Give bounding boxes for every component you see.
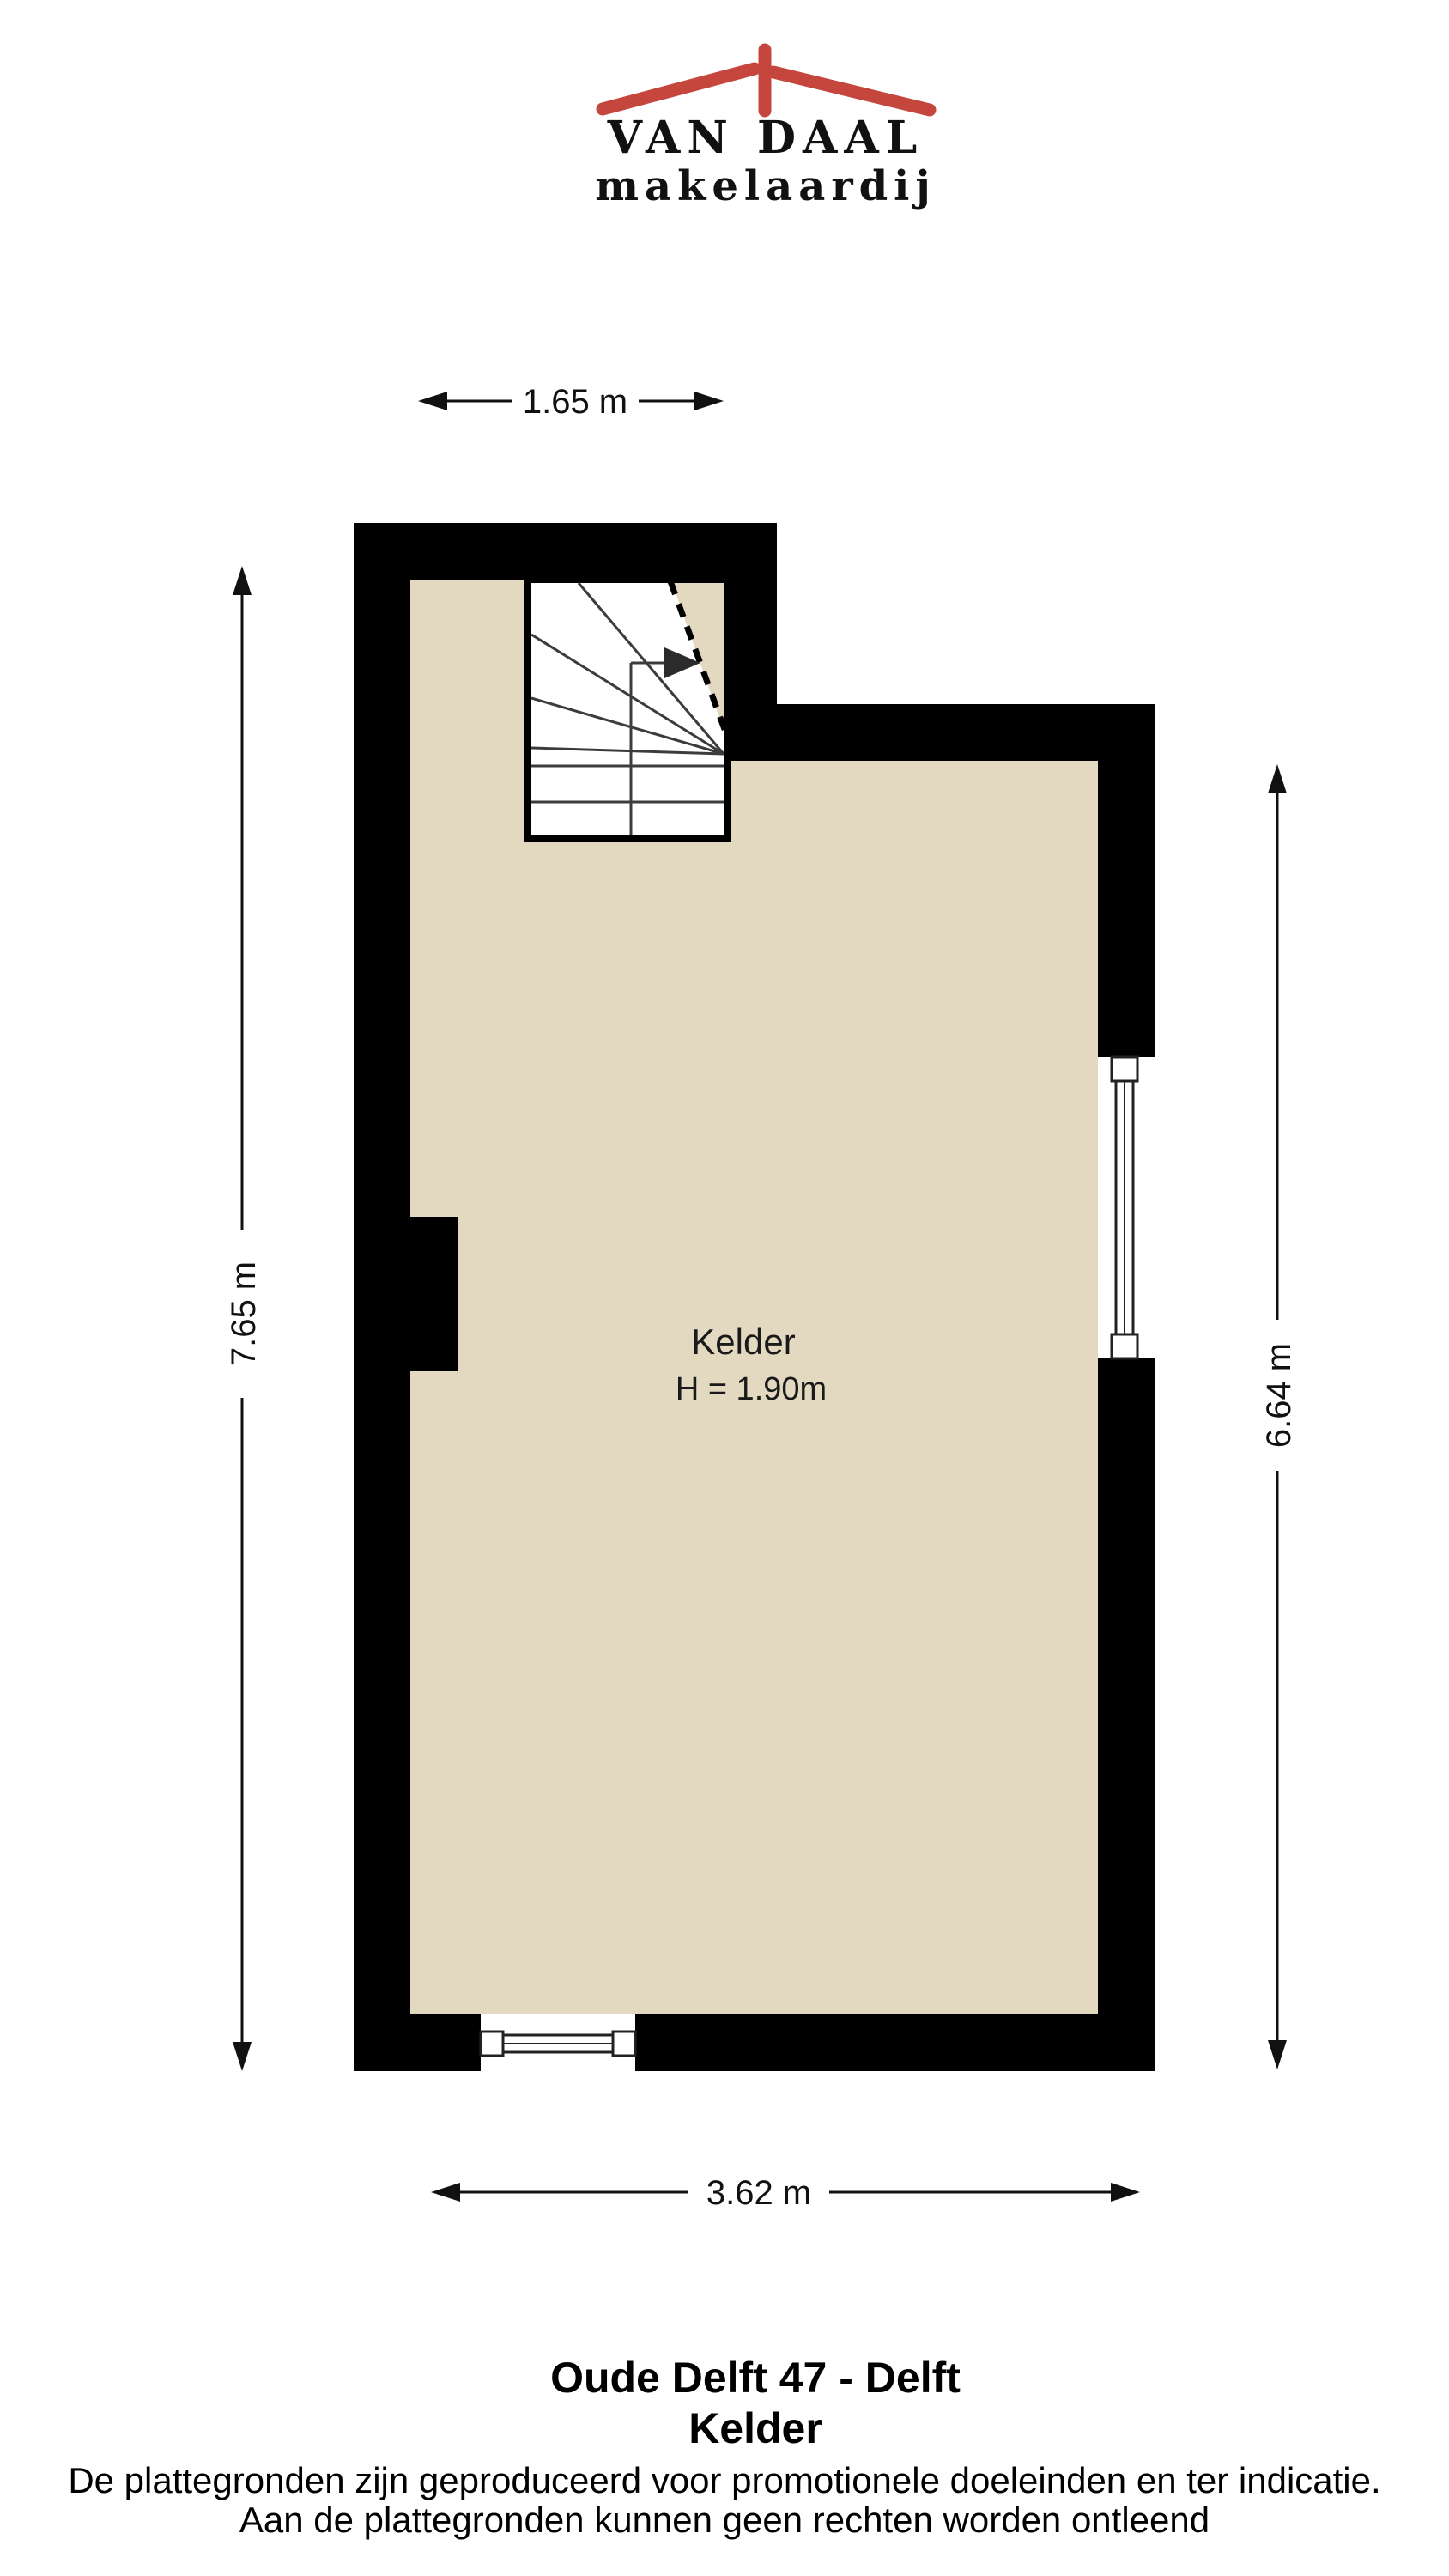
window-bottom-cap-left: [481, 2032, 503, 2056]
wall-top-lower: [725, 704, 1155, 761]
room-name-label: Kelder: [691, 1321, 795, 1362]
room-floor: [410, 580, 1098, 2014]
window-right-cap-bottom: [1112, 1334, 1137, 1358]
dimension-right: 6.64 m: [1260, 764, 1298, 2069]
wall-right-upper: [1098, 704, 1155, 1057]
arrow-down-icon: [233, 2042, 252, 2071]
disclaimer-line-1: De plattegronden zijn geproduceerd voor …: [68, 2460, 1380, 2500]
logo-tagline: makelaardij: [595, 162, 937, 210]
dimension-bottom: 3.62 m: [431, 2174, 1140, 2212]
window-bottom-cap-right: [613, 2032, 635, 2056]
dimension-top: 1.65 m: [418, 383, 724, 421]
arrow-up-icon: [233, 566, 252, 595]
arrow-right-icon: [694, 392, 724, 410]
window-right-cap-top: [1112, 1057, 1137, 1081]
roof-left-slope: [603, 69, 755, 109]
window-bottom: [481, 2014, 635, 2071]
floorplan-canvas: VAN DAAL makelaardij: [0, 0, 1449, 2576]
wall-bottom-left: [354, 2014, 481, 2071]
logo: VAN DAAL makelaardij: [595, 50, 937, 210]
room-height-label: H = 1.90m: [676, 1371, 827, 1407]
dim-left-label: 7.65 m: [225, 1261, 263, 1366]
address-title: Oude Delft 47 - Delft: [550, 2354, 961, 2402]
wall-bottom-right: [635, 2014, 1155, 2071]
dim-right-label: 6.64 m: [1260, 1343, 1298, 1448]
wall-left: [354, 523, 410, 2071]
wall-right-lower: [1098, 1358, 1155, 2071]
window-right: [1098, 1057, 1155, 1358]
floorplan-page: VAN DAAL makelaardij: [0, 0, 1449, 2576]
wall-top-upper: [354, 523, 777, 580]
wall-pier-left: [410, 1217, 458, 1371]
logo-wordmark: VAN DAAL: [607, 112, 925, 164]
arrow-left-icon: [418, 392, 447, 410]
arrow-down-icon: [1268, 2040, 1287, 2069]
floor-name-title: Kelder: [688, 2404, 822, 2452]
footer: Oude Delft 47 - Delft Kelder De plattegr…: [68, 2354, 1380, 2540]
dim-top-label: 1.65 m: [523, 383, 627, 421]
arrow-left-icon: [431, 2183, 460, 2202]
roof-right-slope: [773, 72, 930, 110]
dimension-left: 7.65 m: [225, 566, 263, 2071]
arrow-right-icon: [1111, 2183, 1140, 2202]
staircase: [528, 580, 727, 839]
disclaimer-line-2: Aan de plattegronden kunnen geen rechten…: [239, 2500, 1210, 2540]
logo-roof-icon: [603, 50, 930, 111]
arrow-up-icon: [1268, 764, 1287, 793]
dim-bottom-label: 3.62 m: [706, 2174, 811, 2212]
